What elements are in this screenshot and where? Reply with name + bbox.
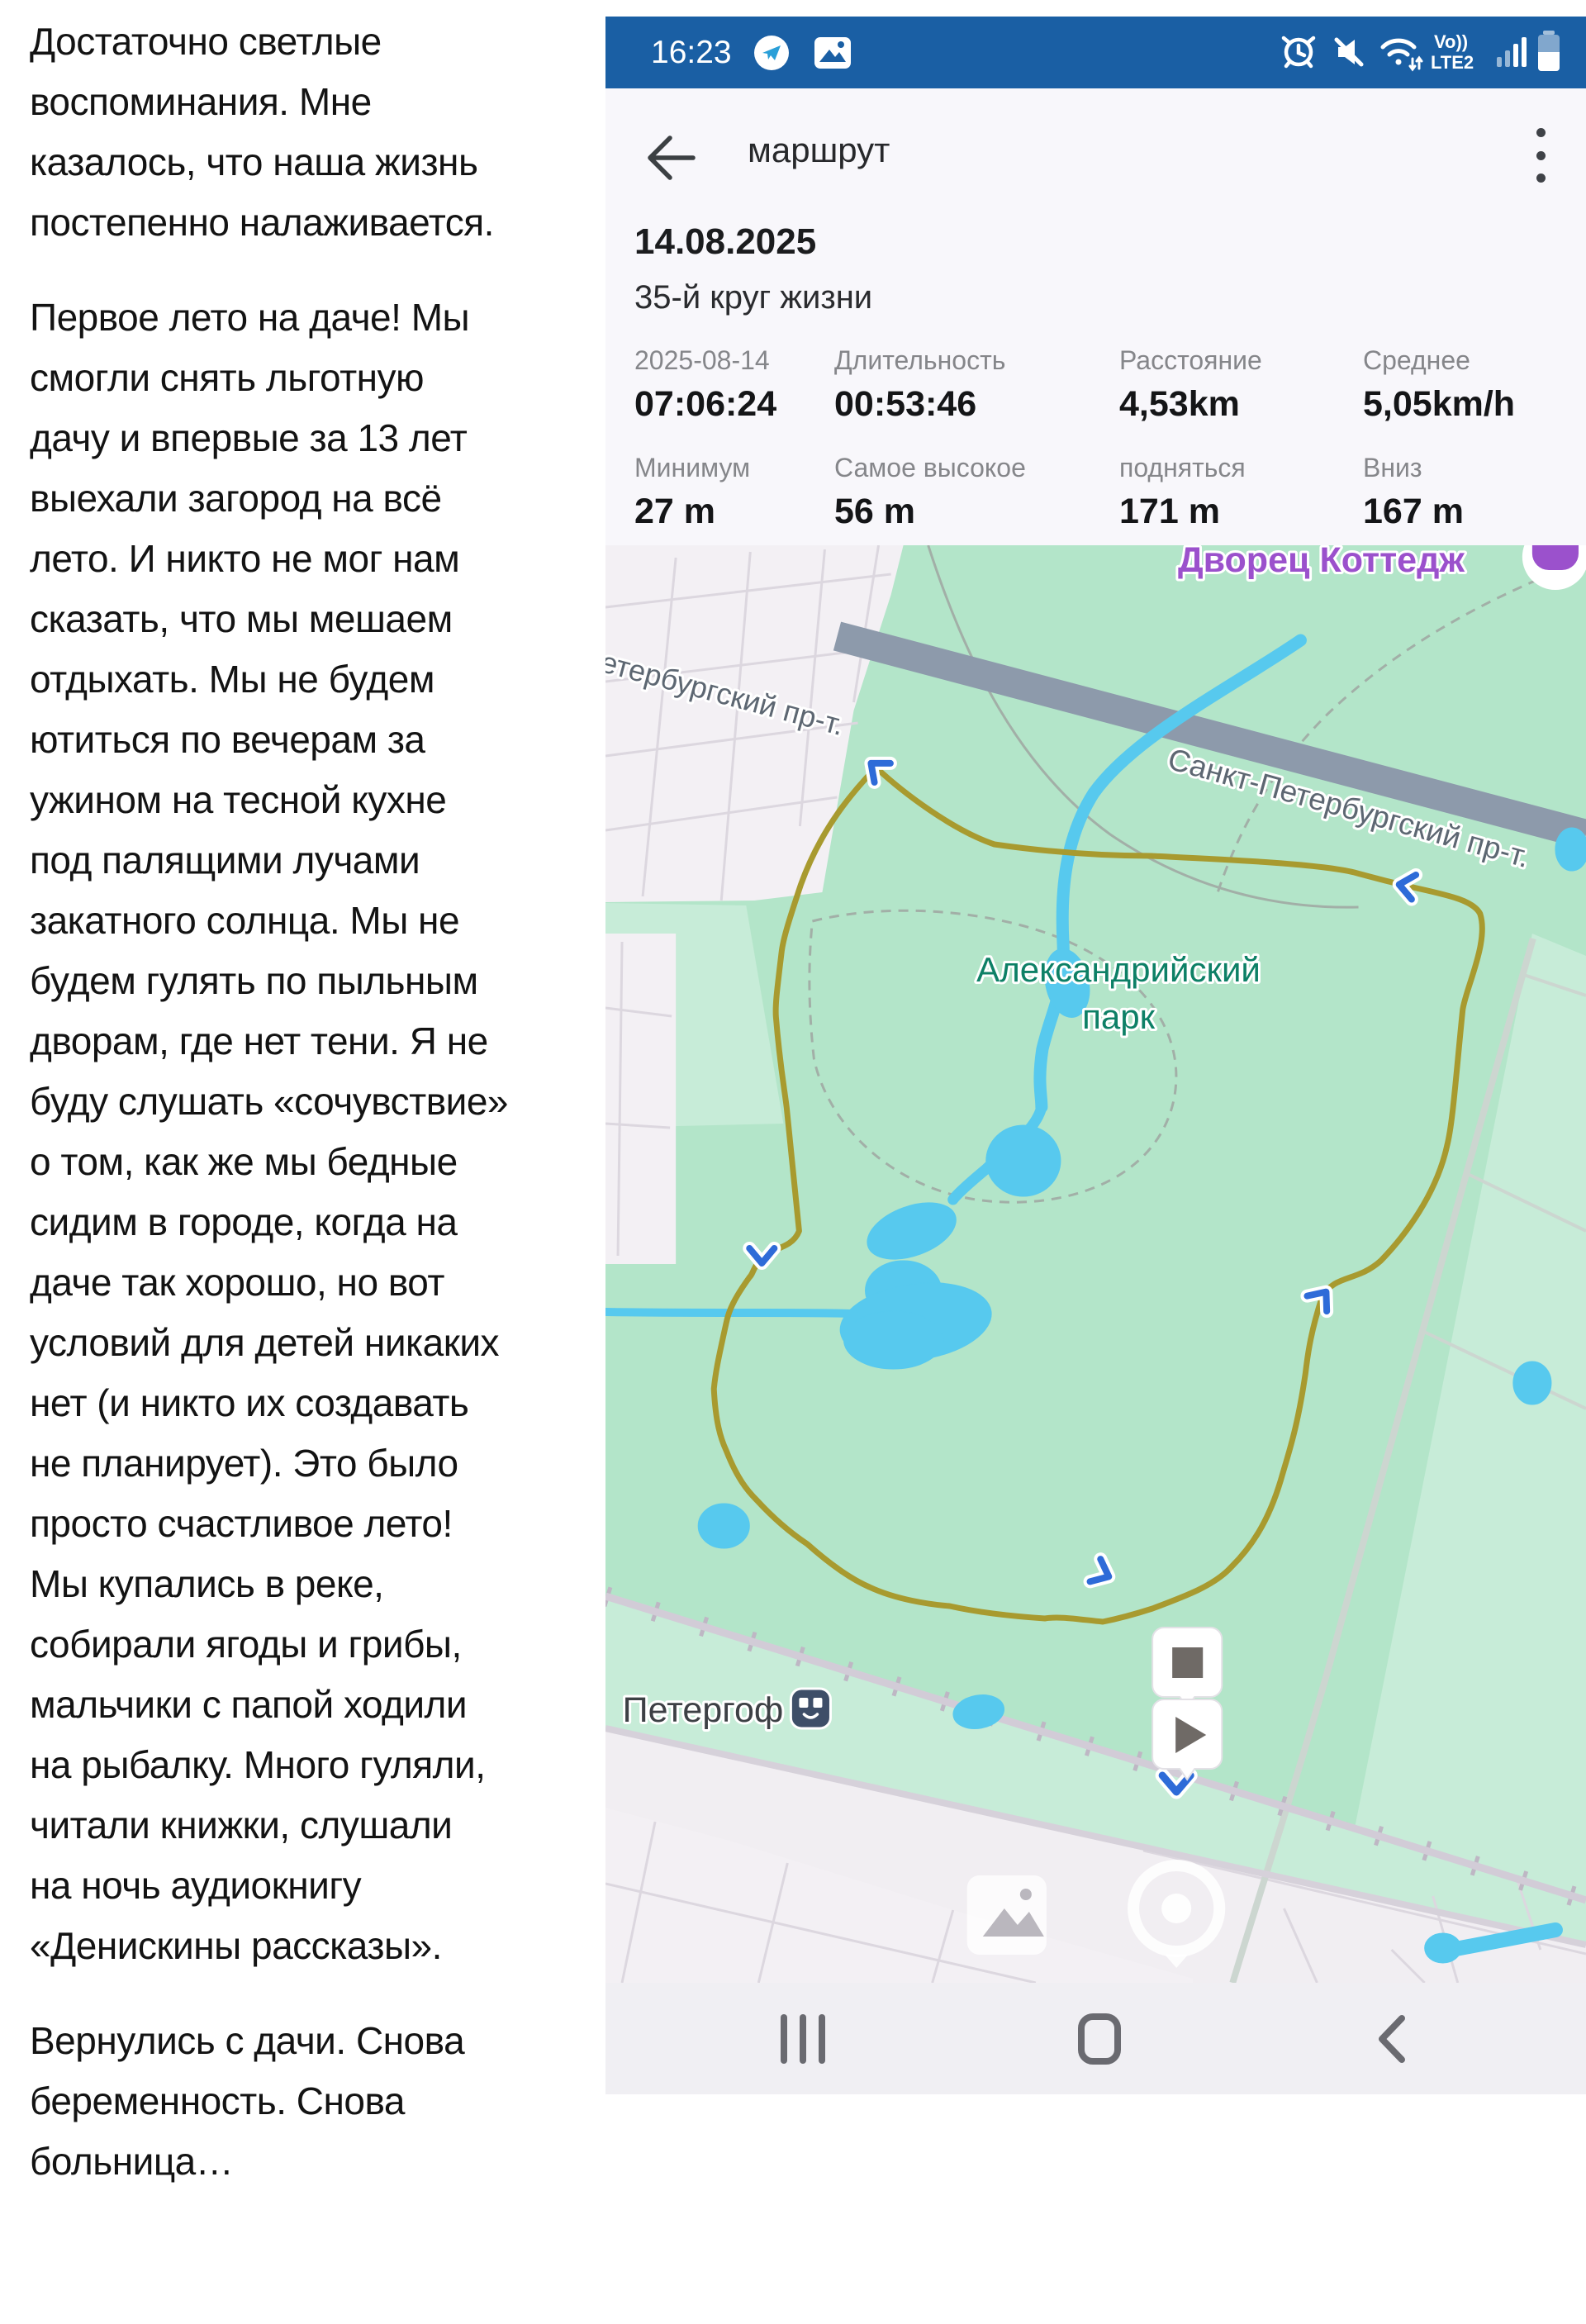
route-map[interactable]: Петергоф Александрийский парк етербургск… <box>605 545 1586 1983</box>
gallery-icon <box>811 34 854 72</box>
stat-label: Вниз <box>1363 453 1586 483</box>
clock: 16:23 <box>651 35 732 71</box>
svg-text:Vo)): Vo)) <box>1434 31 1468 52</box>
battery-icon <box>1538 31 1560 71</box>
app-bar: маршрут <box>605 88 1586 227</box>
stat-value: 27 m <box>634 492 834 532</box>
stats-row: 2025-08-1407:06:24 Длительность00:53:46 … <box>634 345 1586 425</box>
mute-icon <box>1337 40 1361 64</box>
stats-row: Минимум27 m Самое высокое56 m подняться1… <box>634 453 1586 532</box>
stat-label: 2025-08-14 <box>634 345 834 376</box>
stat-value: 5,05km/h <box>1363 384 1586 425</box>
paragraph: Достаточно светлые воспоминания. Мне каз… <box>30 12 610 253</box>
svg-text:Александрийский: Александрийский <box>976 950 1261 989</box>
back-arrow-icon[interactable] <box>645 135 696 181</box>
status-icons: Vo)) LTE2 <box>1280 26 1578 78</box>
stat-value: 4,53km <box>1119 384 1363 425</box>
signal-icon <box>1497 37 1527 67</box>
stat-value: 07:06:24 <box>634 384 834 425</box>
stat-label: подняться <box>1119 453 1363 483</box>
back-button[interactable] <box>1374 2013 1408 2065</box>
town-label: Петергоф <box>623 1690 784 1730</box>
stat-label: Минимум <box>634 453 834 483</box>
paragraph: Вернулись с дачи. Снова беременность. Сн… <box>30 2011 610 2192</box>
stat-label: Среднее <box>1363 345 1586 376</box>
stat-value: 56 m <box>834 492 1119 532</box>
android-nav-bar <box>605 1983 1586 2094</box>
recents-button[interactable] <box>781 2014 825 2064</box>
route-title: 35-й круг жизни <box>634 279 872 316</box>
poi-label: Дворец Коттедж <box>1178 545 1465 580</box>
stat-label: Длительность <box>834 345 1119 376</box>
train-station-icon <box>791 1689 830 1728</box>
stat-value: 00:53:46 <box>834 384 1119 425</box>
alarm-icon <box>1284 38 1313 66</box>
telegram-icon <box>750 31 793 74</box>
stop-marker[interactable] <box>1152 1628 1222 1707</box>
route-date: 14.08.2025 <box>634 221 816 263</box>
photo-layer-button[interactable] <box>967 1875 1047 1955</box>
wifi-icon <box>1383 40 1422 69</box>
kebab-menu-icon[interactable] <box>1535 128 1546 183</box>
paragraph: Первое лето на даче! Мы смогли снять льг… <box>30 288 610 1976</box>
document-text: Достаточно светлые воспоминания. Мне каз… <box>30 12 610 2227</box>
stat-label: Самое высокое <box>834 453 1119 483</box>
home-button[interactable] <box>1078 2013 1121 2065</box>
status-bar: 16:23 <box>605 17 1586 88</box>
page-title: маршрут <box>748 131 890 170</box>
stat-value: 171 m <box>1119 492 1363 532</box>
stat-value: 167 m <box>1363 492 1586 532</box>
svg-text:парк: парк <box>1082 997 1156 1036</box>
stat-label: Расстояние <box>1119 345 1363 376</box>
volte-label: Vo)) LTE2 <box>1431 31 1474 73</box>
play-marker[interactable] <box>1152 1699 1222 1780</box>
phone-screenshot: 16:23 <box>605 17 1586 2094</box>
svg-text:LTE2: LTE2 <box>1431 52 1474 73</box>
